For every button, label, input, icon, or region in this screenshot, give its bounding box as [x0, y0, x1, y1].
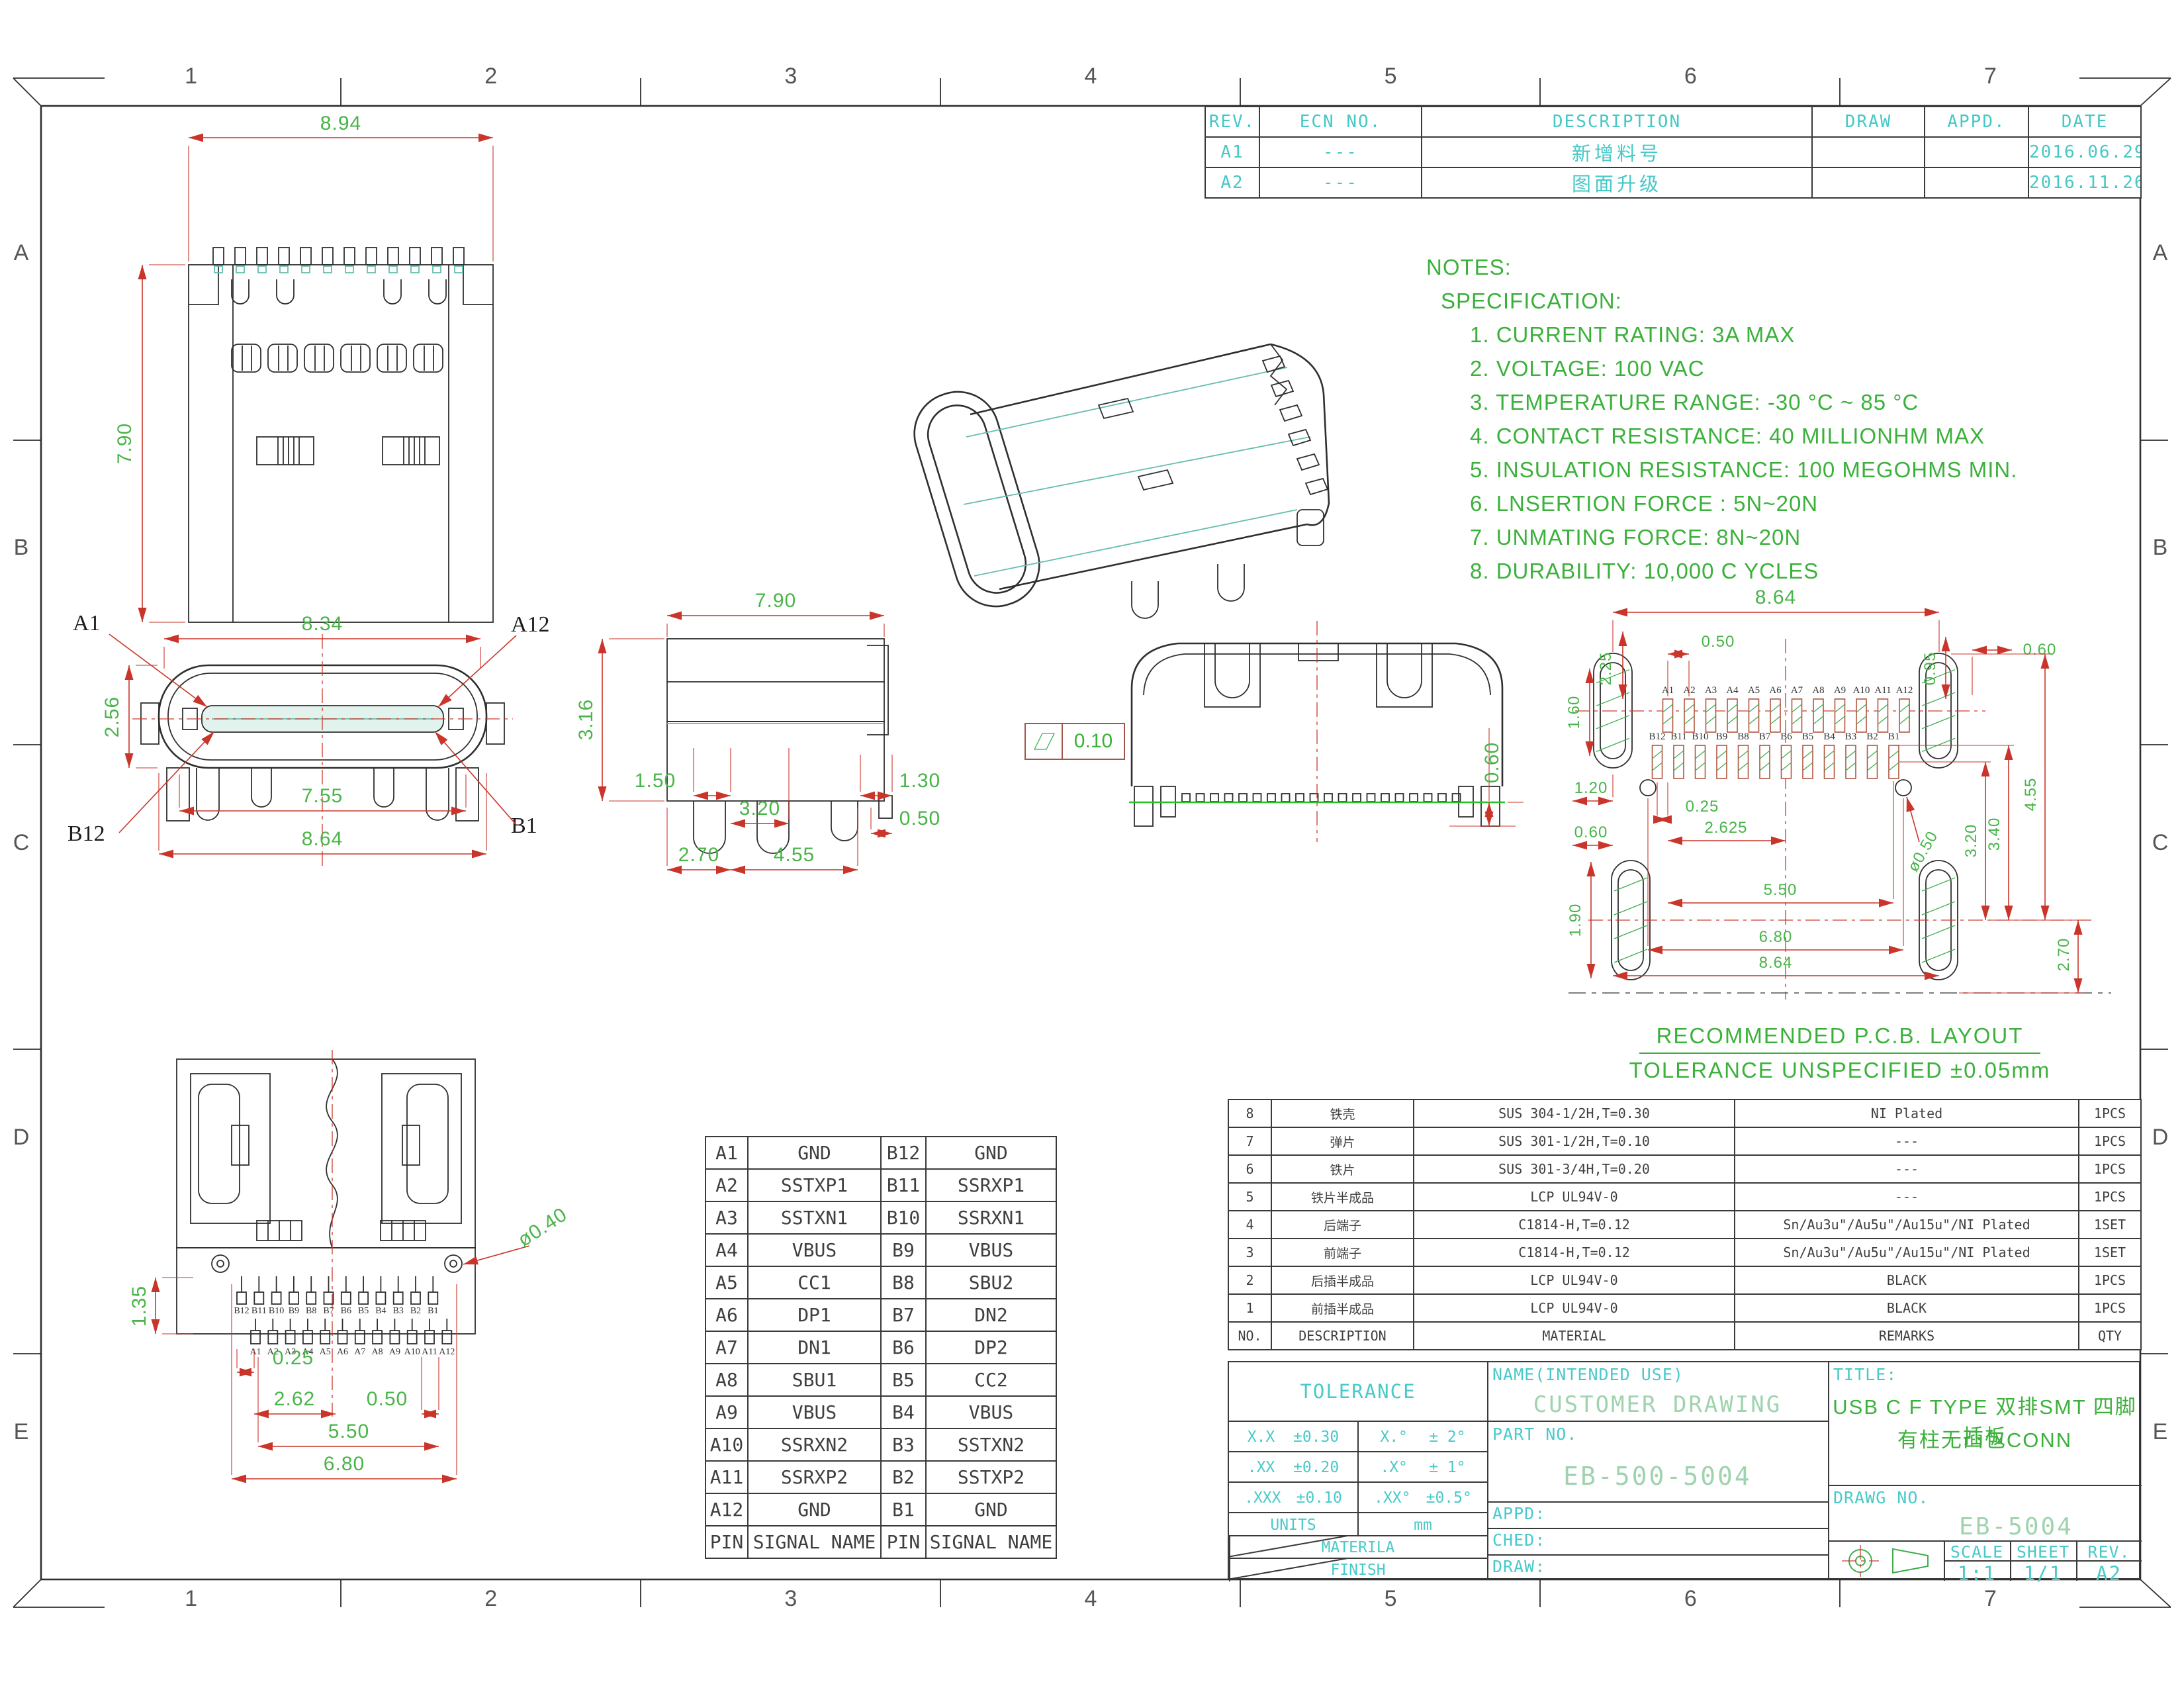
notes-title: NOTES:	[1426, 250, 2017, 284]
pin-b-cell: B5	[881, 1364, 926, 1396]
bom-qty: 1SET	[2079, 1239, 2141, 1266]
spec-item: 6. LNSERTION FORCE : 5N~20N	[1426, 487, 2017, 520]
zone-labels-right: ABCDE	[2148, 106, 2172, 1579]
pin-b-cell: B8	[881, 1266, 926, 1299]
svg-text:A5: A5	[320, 1347, 331, 1357]
dimension-text: 4.55	[2022, 778, 2040, 812]
bom-row: 6 铁片 SUS 301-3/4H,T=0.20 --- 1PCS	[1228, 1155, 2141, 1183]
dimension-text: 6.80	[324, 1453, 365, 1475]
pin-row: A8 SBU1 B5 CC2	[705, 1364, 1056, 1396]
pin-a-cell: A11	[705, 1461, 748, 1493]
bom-remarks: Sn/Au3u"/Au5u"/Au15u"/NI Plated	[1735, 1211, 2079, 1239]
bom-no: 1	[1228, 1294, 1271, 1322]
bom-header-row: NO. DESCRIPTION MATERIAL REMARKS QTY	[1228, 1322, 2141, 1350]
pin-row: A5 CC1 B8 SBU2	[705, 1266, 1056, 1299]
svg-text:A1: A1	[250, 1347, 261, 1357]
signal-header: SIGNAL NAME	[926, 1526, 1056, 1558]
svg-text:B9: B9	[289, 1306, 299, 1316]
zone-row-label: B	[2148, 400, 2172, 695]
svg-text:B4: B4	[375, 1306, 386, 1316]
zone-col-label: 2	[341, 1586, 641, 1612]
drawing-title-line2: 有柱无凸包CONN	[1828, 1423, 2142, 1453]
pin-b-cell: B4	[881, 1396, 926, 1429]
pin-row: A12 GND B1 GND	[705, 1493, 1056, 1526]
zone-col-label: 5	[1241, 64, 1541, 89]
zone-labels-top: 1234567	[41, 64, 2140, 89]
bom-no: 8	[1228, 1100, 1271, 1127]
dimension-text: 8.64	[1759, 954, 1793, 972]
description-header: DESCRIPTION	[1422, 107, 1812, 137]
svg-text:A10: A10	[1853, 685, 1870, 696]
signal-b-cell: SSRXN1	[926, 1201, 1056, 1234]
pin-a-cell: A2	[705, 1169, 748, 1201]
pin-header-row: PIN SIGNAL NAME PIN SIGNAL NAME	[705, 1526, 1056, 1558]
zone-row-label: E	[9, 1285, 33, 1579]
zone-col-label: 4	[940, 64, 1240, 89]
bom-qty: 1PCS	[2079, 1127, 2141, 1155]
signal-b-cell: GND	[926, 1493, 1056, 1526]
zone-col-label: 2	[341, 64, 641, 89]
bom-material: LCP UL94V-0	[1414, 1266, 1735, 1294]
zone-labels-left: ABCDE	[9, 106, 33, 1579]
zone-col-label: 6	[1541, 1586, 1841, 1612]
revision-row: A1 --- 新增料号 2016.06.29	[1205, 137, 2141, 167]
zone-row-label: E	[2148, 1285, 2172, 1579]
bom-no: 4	[1228, 1211, 1271, 1239]
appd-cell	[1925, 167, 2028, 198]
bom-remarks: BLACK	[1735, 1266, 2079, 1294]
bom-no: 7	[1228, 1127, 1271, 1155]
bom-description: 前端子	[1271, 1239, 1414, 1266]
sheet-label: SHEET	[2010, 1542, 2076, 1562]
scale-label: SCALE	[1944, 1542, 2010, 1562]
pcb-layout-drawing: A1A2A3A4A5A6A7A8A9A10A11A12B12B11B10B9B8…	[1549, 576, 2144, 1013]
svg-text:B12: B12	[234, 1306, 249, 1316]
bom-row: 1 前插半成品 LCP UL94V-0 BLACK 1PCS	[1228, 1294, 2141, 1322]
svg-text:B10: B10	[1692, 731, 1708, 742]
signal-a-cell: GND	[748, 1493, 881, 1526]
pin-b-cell: B1	[881, 1493, 926, 1526]
svg-text:B8: B8	[1737, 731, 1749, 742]
pin-a-cell: A6	[705, 1299, 748, 1331]
zone-labels-bottom: 1234567	[41, 1586, 2140, 1612]
spec-item: 5. INSULATION RESISTANCE: 100 MEGOHMS MI…	[1426, 453, 2017, 487]
dimension-text: 5.50	[328, 1421, 369, 1442]
bom-row: 2 后插半成品 LCP UL94V-0 BLACK 1PCS	[1228, 1266, 2141, 1294]
bom-qty: 1PCS	[2079, 1266, 2141, 1294]
bom-qty: 1PCS	[2079, 1100, 2141, 1127]
svg-text:B1: B1	[428, 1306, 438, 1316]
bom-no: 5	[1228, 1183, 1271, 1211]
bom-description: 铁片半成品	[1271, 1183, 1414, 1211]
pin-row: A6 DP1 B7 DN2	[705, 1299, 1056, 1331]
pin-label-a1: A1	[73, 611, 101, 635]
signal-a-cell: SSRXN2	[748, 1429, 881, 1461]
zone-row-label: D	[2148, 990, 2172, 1285]
bom-material-header: MATERIAL	[1414, 1322, 1735, 1350]
dimension-text: ø0.50	[1904, 828, 1942, 875]
finish-blank-cell	[1229, 1559, 1359, 1581]
pin-row: A4 VBUS B9 VBUS	[705, 1234, 1056, 1266]
pin-row: A3 SSTXN1 B10 SSRXN1	[705, 1201, 1056, 1234]
bom-description: 弹片	[1271, 1127, 1414, 1155]
spec-item: 7. UNMATING FORCE: 8N~20N	[1426, 520, 2017, 554]
svg-text:B8: B8	[306, 1306, 316, 1316]
signal-a-cell: CC1	[748, 1266, 881, 1299]
svg-text:B12: B12	[1649, 731, 1665, 742]
pin-row: A2 SSTXP1 B11 SSRXP1	[705, 1169, 1056, 1201]
signal-b-cell: CC2	[926, 1364, 1056, 1396]
bom-remarks: Sn/Au3u"/Au5u"/Au15u"/NI Plated	[1735, 1239, 2079, 1266]
bom-row: 8 铁壳 SUS 304-1/2H,T=0.30 NI Plated 1PCS	[1228, 1100, 2141, 1127]
pin-row: A1 GND B12 GND	[705, 1137, 1056, 1169]
svg-text:B7: B7	[323, 1306, 334, 1316]
dimension-text: 3.16	[575, 699, 597, 740]
dimension-text: 7.90	[755, 590, 796, 612]
bom-description: 铁片	[1271, 1155, 1414, 1183]
dimension-text: 0.95	[1921, 652, 1939, 686]
notes-block: NOTES: SPECIFICATION: 1. CURRENT RATING:…	[1426, 250, 2017, 588]
svg-text:A6: A6	[337, 1347, 348, 1357]
zone-row-label: C	[2148, 695, 2172, 990]
pin-signal-table: A1 GND B12 GND A2 SSTXP1 B11 SSRXP1 A3 S…	[705, 1136, 1057, 1559]
dimension-text: 7.55	[302, 785, 343, 807]
bom-material: C1814-H,T=0.12	[1414, 1211, 1735, 1239]
bom-table: 8 铁壳 SUS 304-1/2H,T=0.30 NI Plated 1PCS …	[1228, 1099, 2142, 1350]
side-view-drawing: 7.903.161.503.201.300.502.704.55	[582, 583, 1013, 914]
pin-b-cell: B2	[881, 1461, 926, 1493]
svg-text:A7: A7	[354, 1347, 365, 1357]
rear-view-drawing: 0.60	[1092, 609, 1542, 854]
bom-no: 6	[1228, 1155, 1271, 1183]
dimension-text: 2.70	[678, 844, 719, 866]
pcb-caption-tolerance: TOLERANCE UNSPECIFIED ±0.05mm	[1588, 1058, 2091, 1083]
pin-a-cell: A12	[705, 1493, 748, 1526]
signal-b-cell: VBUS	[926, 1396, 1056, 1429]
svg-text:B9: B9	[1716, 731, 1728, 742]
dimension-text: 2.62	[274, 1388, 315, 1410]
bom-qty-header: QTY	[2079, 1322, 2141, 1350]
pin-a-cell: A1	[705, 1137, 748, 1169]
signal-b-cell: GND	[926, 1137, 1056, 1169]
dimension-text: 2.56	[101, 696, 123, 737]
part-no-label: PART NO.	[1492, 1425, 1577, 1444]
svg-text:B10: B10	[269, 1306, 284, 1316]
bom-no-header: NO.	[1228, 1322, 1271, 1350]
date-cell: 2016.11.26	[2028, 167, 2141, 198]
front-view-drawing: A1 A12 B12 B1 8.342.567.558.64	[53, 576, 609, 880]
signal-b-cell: VBUS	[926, 1234, 1056, 1266]
bom-material: C1814-H,T=0.12	[1414, 1239, 1735, 1266]
description-cell: 图面升级	[1422, 167, 1812, 198]
projection-symbol-icon	[1830, 1542, 1942, 1579]
draw-cell	[1812, 137, 1925, 167]
pin-b-cell: B11	[881, 1169, 926, 1201]
title-label: TITLE:	[1833, 1365, 1897, 1384]
pin-header: PIN	[881, 1526, 926, 1558]
svg-text:B1: B1	[1888, 731, 1900, 742]
dimension-text: 7.90	[114, 423, 136, 464]
pin-row: A11 SSRXP2 B2 SSTXP2	[705, 1461, 1056, 1493]
signal-b-cell: DN2	[926, 1299, 1056, 1331]
zone-col-label: 5	[1241, 1586, 1541, 1612]
signal-a-cell: GND	[748, 1137, 881, 1169]
pcb-caption: RECOMMENDED P.C.B. LAYOUT TOLERANCE UNSP…	[1588, 1023, 2091, 1083]
dimension-text: 8.64	[302, 828, 343, 850]
bom-description: 后端子	[1271, 1211, 1414, 1239]
rev-cell: A1	[1205, 137, 1259, 167]
zone-row-label: A	[2148, 106, 2172, 400]
bom-qty: 1PCS	[2079, 1155, 2141, 1183]
signal-a-cell: VBUS	[748, 1234, 881, 1266]
svg-text:A9: A9	[1834, 685, 1846, 696]
svg-text:B6: B6	[1780, 731, 1792, 742]
scale-value: 1:1	[1944, 1562, 2010, 1585]
dimension-text: 1.50	[635, 770, 676, 792]
bom-row: 5 铁片半成品 LCP UL94V-0 --- 1PCS	[1228, 1183, 2141, 1211]
pin-label-b12: B12	[68, 821, 105, 846]
spec-item: 1. CURRENT RATING: 3A MAX	[1426, 318, 2017, 352]
signal-b-cell: SSTXP2	[926, 1461, 1056, 1493]
sheet-value: 1/1	[2010, 1562, 2076, 1585]
pin-a-cell: A3	[705, 1201, 748, 1234]
pin-row: A7 DN1 B6 DP2	[705, 1331, 1056, 1364]
flatness-symbol-icon	[1026, 724, 1063, 759]
bom-description: 后插半成品	[1271, 1266, 1414, 1294]
svg-text:B3: B3	[1845, 731, 1857, 742]
description-cell: 新增料号	[1422, 137, 1812, 167]
signal-header: SIGNAL NAME	[748, 1526, 881, 1558]
drawg-no-value: EB-5004	[1891, 1513, 2142, 1540]
dimension-text: 2.70	[2055, 938, 2073, 972]
ecn-cell: ---	[1259, 167, 1422, 198]
name-value: CUSTOMER DRAWING	[1487, 1391, 1828, 1418]
signal-a-cell: SSTXN1	[748, 1201, 881, 1234]
svg-text:B5: B5	[358, 1306, 369, 1316]
dimension-text: 8.34	[302, 613, 343, 635]
dimension-text: 4.55	[774, 844, 815, 866]
revision-header-row: REV. ECN NO. DESCRIPTION DRAW APPD. DATE	[1205, 107, 2141, 137]
dimension-text: 0.60	[1574, 823, 1608, 841]
bom-material: SUS 301-3/4H,T=0.20	[1414, 1155, 1735, 1183]
tolerance-row-1: X.X±0.30 X.°± 2°	[1229, 1422, 1487, 1452]
signal-a-cell: SSTXP1	[748, 1169, 881, 1201]
bom-no: 2	[1228, 1266, 1271, 1294]
pin-b-cell: B6	[881, 1331, 926, 1364]
signal-a-cell: VBUS	[748, 1396, 881, 1429]
dimension-text: 0.50	[899, 808, 940, 829]
dimension-text: 1.35	[128, 1286, 150, 1327]
part-no-value: EB-500-5004	[1487, 1462, 1828, 1491]
pin-b-cell: B12	[881, 1137, 926, 1169]
bom-no: 3	[1228, 1239, 1271, 1266]
bom-remarks: ---	[1735, 1127, 2079, 1155]
draw-cell	[1812, 167, 1925, 198]
svg-text:B2: B2	[410, 1306, 421, 1316]
dimension-text: 1.60	[1565, 696, 1583, 729]
signal-a-cell: SBU1	[748, 1364, 881, 1396]
dimension-text: 1.90	[1567, 904, 1584, 937]
tolerance-row-3: .XXX±0.10 .XX°±0.5°	[1229, 1483, 1487, 1513]
bom-material: LCP UL94V-0	[1414, 1294, 1735, 1322]
zone-row-label: D	[9, 990, 33, 1285]
units-row: UNITS mm	[1229, 1513, 1487, 1536]
bom-qty: 1PCS	[2079, 1294, 2141, 1322]
dimension-text: 2.25	[1597, 652, 1615, 686]
bom-remarks: ---	[1735, 1183, 2079, 1211]
svg-text:A8: A8	[1812, 685, 1824, 696]
svg-text:A4: A4	[1726, 685, 1739, 696]
zone-col-label: 7	[1841, 64, 2140, 89]
bom-qty: 1PCS	[2079, 1183, 2141, 1211]
svg-text:A10: A10	[404, 1347, 420, 1357]
zone-row-label: B	[9, 400, 33, 695]
dimension-text: 0.50	[1702, 633, 1735, 651]
material-blank-cell	[1229, 1536, 1359, 1559]
appd-cell	[1925, 137, 2028, 167]
zone-row-label: A	[9, 106, 33, 400]
dimension-text: 0.60	[2023, 641, 2057, 659]
dimension-text: 3.20	[739, 798, 780, 820]
date-header: DATE	[2028, 107, 2141, 137]
zone-col-label: 7	[1841, 1586, 2140, 1612]
draw-label: DRAW:	[1492, 1557, 1545, 1576]
dimension-text: ø0.40	[514, 1203, 572, 1251]
pin-a-cell: A4	[705, 1234, 748, 1266]
revision-table: REV. ECN NO. DESCRIPTION DRAW APPD. DATE…	[1205, 106, 2142, 199]
bottom-view-drawing: B12B11B10B9B8B7B6B5B4B3B2B1A1A2A3A4A5A6A…	[132, 1046, 688, 1523]
bom-row: 3 前端子 C1814-H,T=0.12 Sn/Au3u"/Au5u"/Au15…	[1228, 1239, 2141, 1266]
bom-material: LCP UL94V-0	[1414, 1183, 1735, 1211]
svg-text:B11: B11	[251, 1306, 267, 1316]
pin-label-a12: A12	[511, 612, 550, 637]
finish-row: FINISH	[1229, 1559, 1487, 1581]
bom-remarks: BLACK	[1735, 1294, 2079, 1322]
signal-b-cell: SBU2	[926, 1266, 1056, 1299]
pin-row: A10 SSRXN2 B3 SSTXN2	[705, 1429, 1056, 1461]
bom-description: 铁壳	[1271, 1100, 1414, 1127]
svg-text:B4: B4	[1823, 731, 1835, 742]
svg-text:B6: B6	[341, 1306, 351, 1316]
svg-text:A8: A8	[372, 1347, 383, 1357]
spec-item: 4. CONTACT RESISTANCE: 40 MILLIONHM MAX	[1426, 419, 2017, 453]
pin-a-cell: A8	[705, 1364, 748, 1396]
pin-b-cell: B10	[881, 1201, 926, 1234]
pin-row: A9 VBUS B4 VBUS	[705, 1396, 1056, 1429]
rev-label: REV.	[2076, 1542, 2142, 1562]
tolerance-row-2: .XX±0.20 .X°± 1°	[1229, 1452, 1487, 1483]
zone-col-label: 1	[41, 1586, 341, 1612]
dimension-text: 5.50	[1764, 881, 1797, 899]
draw-header: DRAW	[1812, 107, 1925, 137]
rev-cell: A2	[1205, 167, 1259, 198]
dimension-text: 0.25	[273, 1347, 314, 1369]
material-row: MATERILA	[1229, 1536, 1487, 1559]
zone-col-label: 3	[641, 1586, 940, 1612]
signal-b-cell: SSRXP1	[926, 1169, 1056, 1201]
ecn-cell: ---	[1259, 137, 1422, 167]
zone-col-label: 4	[940, 1586, 1240, 1612]
pin-label-b1: B1	[511, 814, 537, 838]
svg-text:A12: A12	[1896, 685, 1913, 696]
signal-b-cell: SSTXN2	[926, 1429, 1056, 1461]
dimension-text: 0.25	[1686, 798, 1719, 816]
pin-a-cell: A9	[705, 1396, 748, 1429]
spec-item: 3. TEMPERATURE RANGE: -30 °C ~ 85 °C	[1426, 385, 2017, 419]
dimension-text: 2.625	[1704, 819, 1747, 837]
bom-qty: 1SET	[2079, 1211, 2141, 1239]
spec-title: SPECIFICATION:	[1426, 284, 2017, 318]
dimension-text: 6.80	[1759, 928, 1793, 946]
spec-item: 2. VOLTAGE: 100 VAC	[1426, 352, 2017, 385]
ecn-header: ECN NO.	[1259, 107, 1422, 137]
dimension-text: 1.20	[1574, 779, 1608, 797]
title-block: TOLERANCE X.X±0.30 X.°± 2° .XX±0.20 .X°±…	[1228, 1361, 2140, 1579]
drawg-no-label: DRAWG NO.	[1833, 1488, 1929, 1507]
bom-remarks: ---	[1735, 1155, 2079, 1183]
svg-text:B3: B3	[393, 1306, 404, 1316]
dimension-text: 0.60	[1481, 742, 1503, 783]
bom-row: 7 弹片 SUS 301-1/2H,T=0.10 --- 1PCS	[1228, 1127, 2141, 1155]
dimension-text: 8.64	[1755, 586, 1796, 608]
svg-text:B2: B2	[1866, 731, 1878, 742]
svg-text:A11: A11	[1874, 685, 1891, 696]
dimension-text: 1.30	[899, 770, 940, 792]
dimension-text: 8.94	[320, 113, 361, 134]
svg-text:A12: A12	[439, 1347, 455, 1357]
date-cell: 2016.06.29	[2028, 137, 2141, 167]
pin-a-cell: A10	[705, 1429, 748, 1461]
svg-text:B11: B11	[1670, 731, 1686, 742]
pin-a-cell: A7	[705, 1331, 748, 1364]
svg-text:A9: A9	[389, 1347, 400, 1357]
bom-material: SUS 304-1/2H,T=0.30	[1414, 1100, 1735, 1127]
signal-a-cell: DP1	[748, 1299, 881, 1331]
zone-col-label: 6	[1541, 64, 1841, 89]
svg-text:A7: A7	[1791, 685, 1803, 696]
svg-text:A5: A5	[1748, 685, 1760, 696]
name-label: NAME(INTENDED USE)	[1492, 1365, 1684, 1384]
dimension-text: 0.50	[367, 1388, 408, 1410]
rev-value: A2	[2076, 1562, 2142, 1585]
svg-text:B7: B7	[1759, 731, 1771, 742]
signal-a-cell: DN1	[748, 1331, 881, 1364]
bom-description-header: DESCRIPTION	[1271, 1322, 1414, 1350]
pin-b-cell: B7	[881, 1299, 926, 1331]
drawing-sheet: 1234567 1234567 ABCDE ABCDE REV. ECN NO.…	[0, 0, 2184, 1688]
bom-material: SUS 301-1/2H,T=0.10	[1414, 1127, 1735, 1155]
isometric-view-drawing	[900, 218, 1337, 576]
rev-header: REV.	[1205, 107, 1259, 137]
dimension-text: 3.20	[1962, 824, 1980, 858]
pin-header: PIN	[705, 1526, 748, 1558]
svg-text:A6: A6	[1769, 685, 1782, 696]
top-view-drawing: 8.947.90	[99, 113, 563, 655]
pin-b-cell: B9	[881, 1234, 926, 1266]
bom-description: 前插半成品	[1271, 1294, 1414, 1322]
appd-header: APPD.	[1925, 107, 2028, 137]
svg-text:A3: A3	[1705, 685, 1717, 696]
dimension-text: 3.40	[1985, 818, 2003, 851]
zone-col-label: 1	[41, 64, 341, 89]
signal-b-cell: DP2	[926, 1331, 1056, 1364]
svg-text:B5: B5	[1802, 731, 1814, 742]
pin-b-cell: B3	[881, 1429, 926, 1461]
svg-text:A11: A11	[422, 1347, 437, 1357]
ched-label: CHED:	[1492, 1530, 1545, 1550]
bom-row: 4 后端子 C1814-H,T=0.12 Sn/Au3u"/Au5u"/Au15…	[1228, 1211, 2141, 1239]
tolerance-title: TOLERANCE	[1229, 1362, 1487, 1421]
